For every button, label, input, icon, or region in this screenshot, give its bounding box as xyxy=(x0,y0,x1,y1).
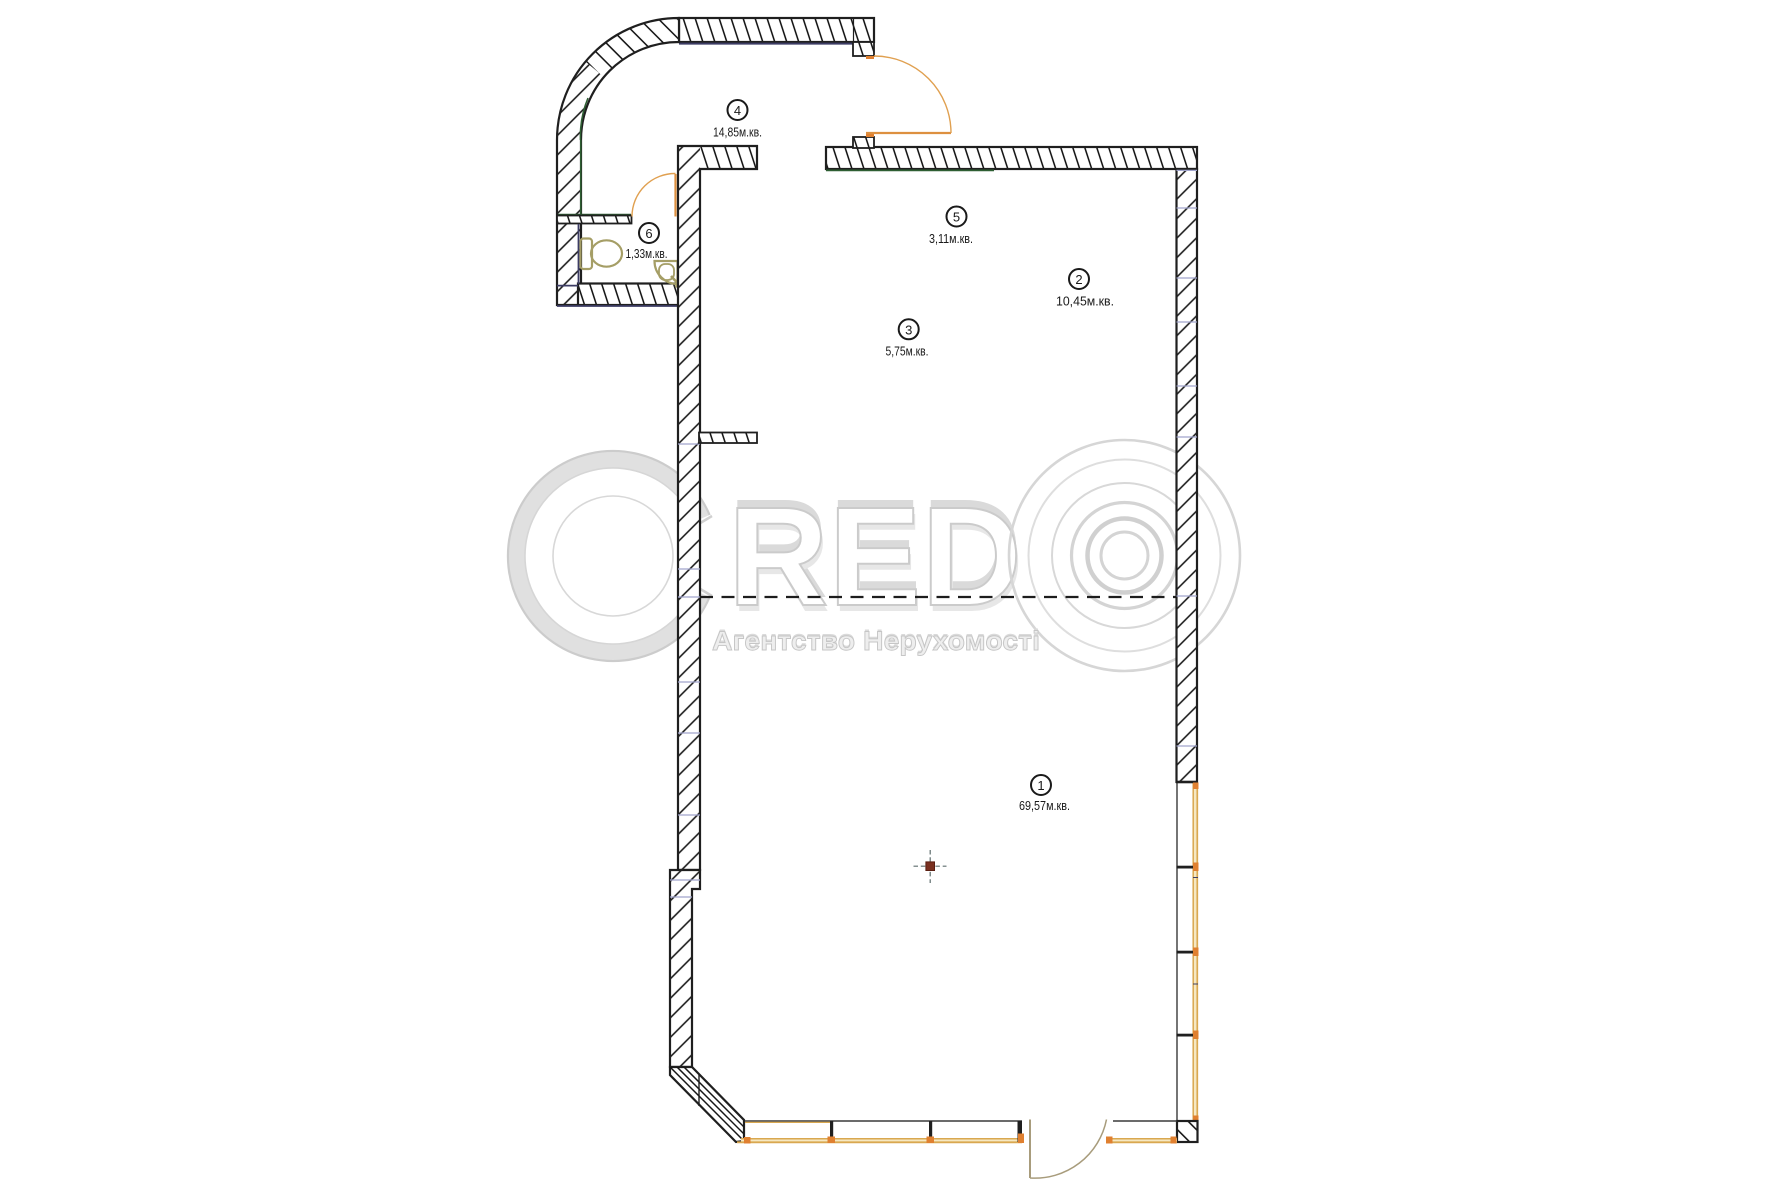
svg-text:3: 3 xyxy=(905,322,912,337)
svg-text:2: 2 xyxy=(1075,272,1082,287)
svg-text:4: 4 xyxy=(734,103,741,118)
svg-text:RED: RED xyxy=(728,477,1022,635)
svg-text:1: 1 xyxy=(1037,778,1044,793)
svg-text:3,11м.кв.: 3,11м.кв. xyxy=(929,231,973,246)
svg-text:5: 5 xyxy=(953,210,960,225)
svg-text:69,57м.кв.: 69,57м.кв. xyxy=(1019,798,1070,813)
svg-text:1,33м.кв.: 1,33м.кв. xyxy=(626,246,668,261)
svg-text:14,85м.кв.: 14,85м.кв. xyxy=(713,125,762,140)
svg-text:10,45м.кв.: 10,45м.кв. xyxy=(1056,294,1114,309)
svg-text:6: 6 xyxy=(645,226,652,241)
svg-text:5,75м.кв.: 5,75м.кв. xyxy=(886,344,929,359)
svg-text:Агентство Нерухомості: Агентство Нерухомості xyxy=(712,626,1040,656)
